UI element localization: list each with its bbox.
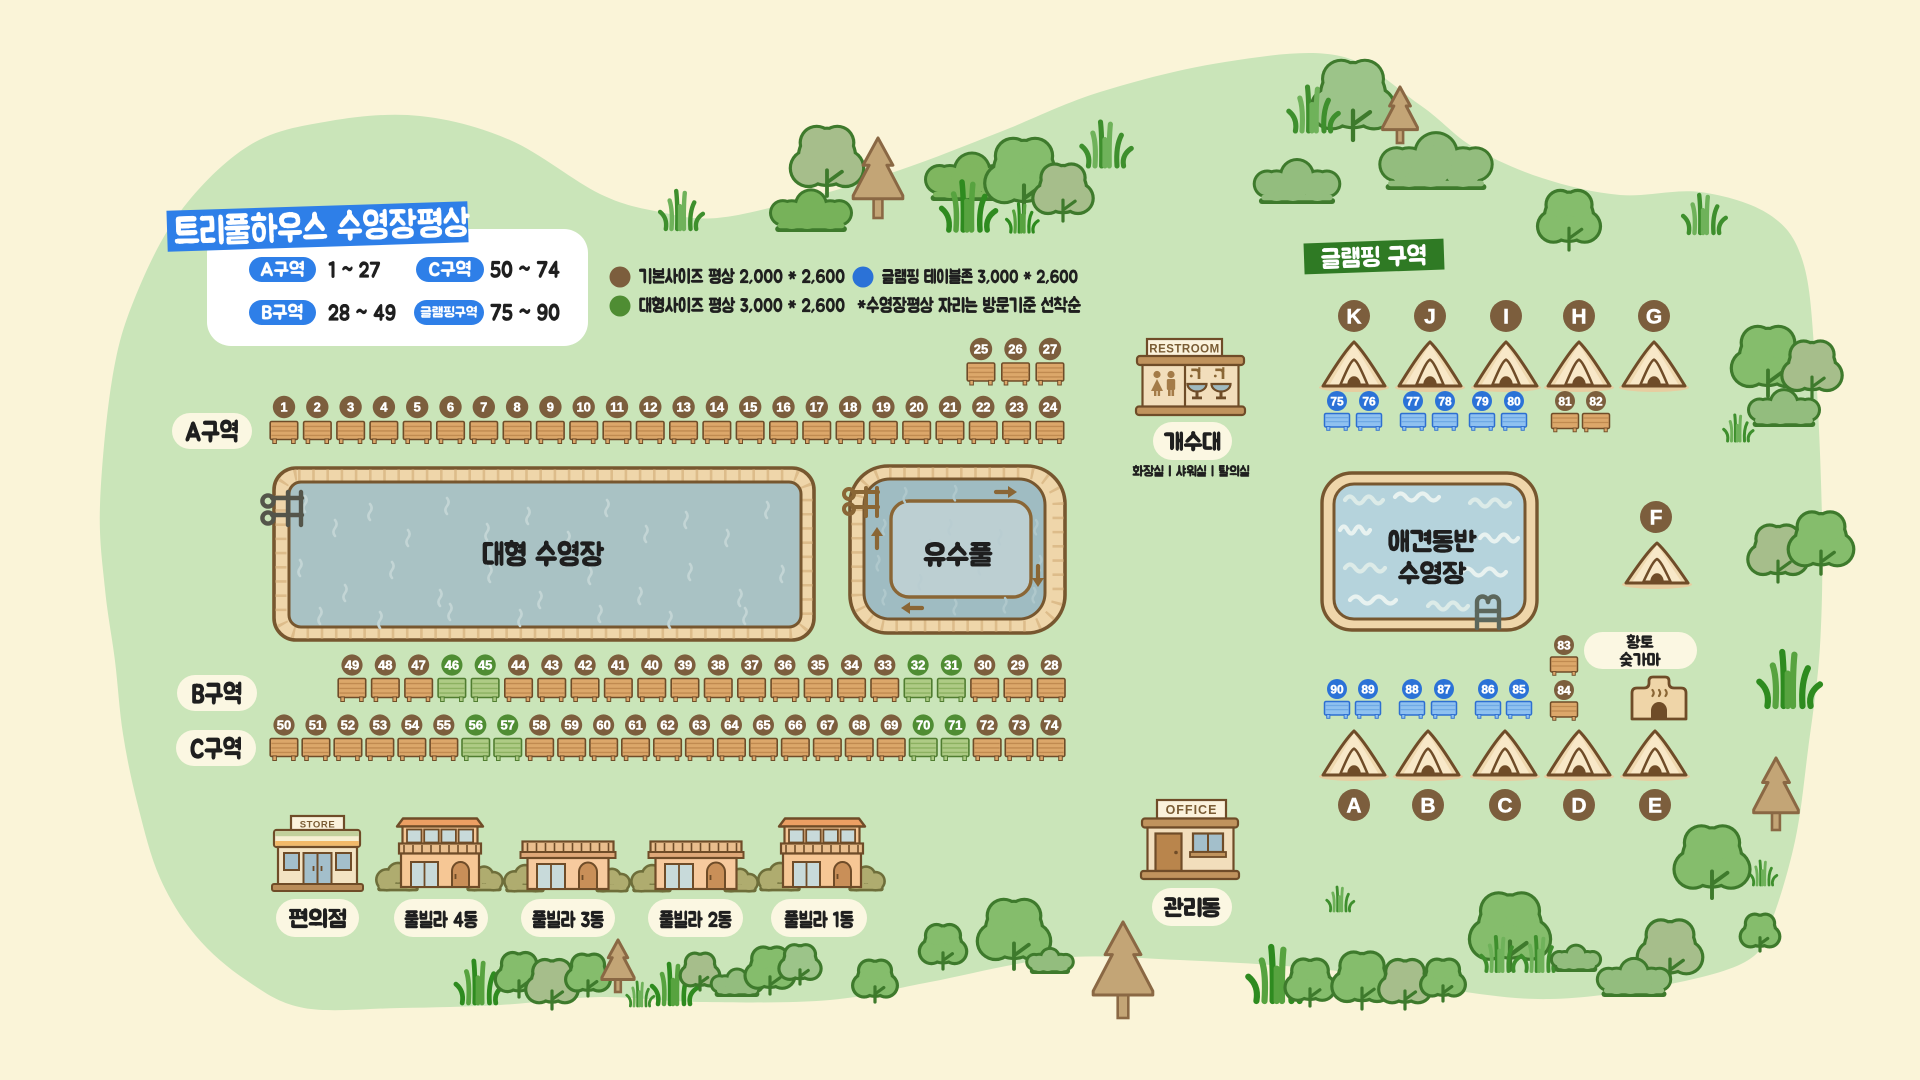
svg-text:90: 90	[1330, 682, 1344, 696]
svg-text:63: 63	[692, 718, 706, 733]
svg-text:19: 19	[876, 400, 890, 415]
svg-text:11: 11	[610, 400, 624, 415]
svg-text:17: 17	[810, 400, 824, 415]
svg-text:86: 86	[1481, 682, 1495, 696]
svg-text:29: 29	[1011, 658, 1025, 673]
svg-text:14: 14	[710, 400, 725, 415]
svg-text:26: 26	[1008, 342, 1022, 357]
svg-text:23: 23	[1009, 400, 1023, 415]
svg-text:31: 31	[944, 658, 958, 673]
svg-text:RESTROOM: RESTROOM	[1149, 344, 1219, 356]
svg-text:55: 55	[437, 718, 451, 733]
svg-text:34: 34	[844, 658, 859, 673]
svg-text:87: 87	[1437, 682, 1451, 696]
svg-text:58: 58	[532, 718, 546, 733]
svg-text:15: 15	[743, 400, 757, 415]
svg-text:42: 42	[578, 658, 592, 673]
svg-text:50: 50	[277, 718, 291, 733]
svg-text:49: 49	[345, 658, 359, 673]
svg-text:52: 52	[341, 718, 355, 733]
svg-text:75: 75	[1330, 394, 1344, 408]
svg-text:22: 22	[976, 400, 990, 415]
svg-text:46: 46	[445, 658, 459, 673]
svg-text:5: 5	[414, 400, 421, 415]
svg-text:80: 80	[1507, 394, 1521, 408]
svg-text:54: 54	[405, 718, 420, 733]
svg-text:36: 36	[778, 658, 792, 673]
svg-text:39: 39	[678, 658, 692, 673]
svg-text:18: 18	[843, 400, 857, 415]
svg-text:57: 57	[500, 718, 514, 733]
svg-text:G: G	[1646, 306, 1662, 329]
svg-text:25: 25	[974, 342, 988, 357]
svg-text:H: H	[1571, 306, 1586, 329]
svg-text:51: 51	[309, 718, 323, 733]
svg-text:J: J	[1424, 306, 1436, 329]
svg-text:3: 3	[347, 400, 354, 415]
svg-text:13: 13	[676, 400, 690, 415]
svg-text:32: 32	[911, 658, 925, 673]
svg-text:48: 48	[378, 658, 392, 673]
svg-text:K: K	[1346, 306, 1361, 329]
svg-text:B: B	[1420, 795, 1435, 818]
svg-text:7: 7	[480, 400, 487, 415]
svg-text:66: 66	[788, 718, 802, 733]
svg-text:12: 12	[643, 400, 657, 415]
svg-text:OFFICE: OFFICE	[1166, 803, 1218, 817]
svg-text:64: 64	[724, 718, 739, 733]
svg-text:47: 47	[411, 658, 425, 673]
svg-text:74: 74	[1044, 718, 1059, 733]
svg-text:79: 79	[1475, 394, 1489, 408]
svg-text:16: 16	[776, 400, 790, 415]
svg-text:89: 89	[1361, 682, 1375, 696]
svg-text:81: 81	[1558, 394, 1572, 408]
svg-text:45: 45	[478, 658, 492, 673]
svg-text:33: 33	[878, 658, 892, 673]
svg-text:77: 77	[1406, 394, 1420, 408]
svg-text:82: 82	[1589, 394, 1603, 408]
svg-text:65: 65	[756, 718, 770, 733]
svg-text:71: 71	[948, 718, 962, 733]
svg-text:43: 43	[545, 658, 559, 673]
svg-text:59: 59	[564, 718, 578, 733]
svg-text:8: 8	[513, 400, 520, 415]
svg-text:E: E	[1648, 795, 1662, 818]
svg-text:56: 56	[469, 718, 483, 733]
svg-text:27: 27	[1043, 342, 1057, 357]
svg-text:37: 37	[744, 658, 758, 673]
svg-text:53: 53	[373, 718, 387, 733]
svg-text:61: 61	[628, 718, 642, 733]
svg-text:88: 88	[1405, 682, 1419, 696]
svg-text:A: A	[1346, 795, 1361, 818]
svg-text:D: D	[1571, 795, 1586, 818]
svg-text:24: 24	[1043, 400, 1058, 415]
svg-text:1: 1	[280, 400, 287, 415]
svg-text:35: 35	[811, 658, 825, 673]
svg-text:28: 28	[1044, 658, 1058, 673]
svg-text:85: 85	[1512, 682, 1526, 696]
svg-text:73: 73	[1012, 718, 1026, 733]
svg-text:C: C	[1497, 795, 1512, 818]
svg-text:78: 78	[1438, 394, 1452, 408]
svg-text:38: 38	[711, 658, 725, 673]
svg-text:F: F	[1650, 507, 1663, 530]
svg-text:83: 83	[1557, 638, 1571, 652]
svg-text:9: 9	[547, 400, 554, 415]
svg-text:84: 84	[1557, 683, 1571, 697]
svg-text:4: 4	[380, 400, 388, 415]
svg-text:40: 40	[644, 658, 658, 673]
svg-text:I: I	[1503, 306, 1509, 329]
svg-text:20: 20	[909, 400, 923, 415]
svg-text:30: 30	[977, 658, 991, 673]
svg-text:21: 21	[943, 400, 957, 415]
svg-text:70: 70	[916, 718, 930, 733]
svg-text:STORE: STORE	[300, 820, 336, 831]
svg-text:76: 76	[1362, 394, 1376, 408]
svg-text:69: 69	[884, 718, 898, 733]
svg-text:67: 67	[820, 718, 834, 733]
svg-text:62: 62	[660, 718, 674, 733]
svg-text:6: 6	[447, 400, 454, 415]
svg-text:2: 2	[314, 400, 321, 415]
svg-text:41: 41	[611, 658, 625, 673]
svg-text:72: 72	[980, 718, 994, 733]
svg-text:44: 44	[511, 658, 526, 673]
svg-text:10: 10	[576, 400, 590, 415]
svg-text:68: 68	[852, 718, 866, 733]
svg-text:60: 60	[596, 718, 610, 733]
